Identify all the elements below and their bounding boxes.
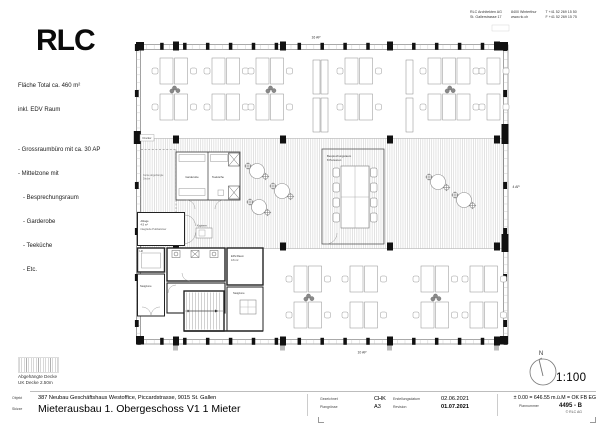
printer-label: Drucker: [142, 136, 151, 140]
titleblock-divider: [30, 391, 596, 392]
objekt-label: Objekt: [12, 396, 22, 400]
gezeichnet-value: CHK: [374, 396, 386, 402]
info-line: - Teeküche: [18, 242, 100, 250]
ap-count-right: 4 AP: [513, 185, 521, 189]
gezeichnet-label: Gezeichnet: [320, 397, 338, 401]
info-line: Fläche Total ca. 460 m²: [18, 82, 100, 90]
legend-text: Abgehängte Decke UK Decke 2.50m: [18, 374, 57, 386]
titleblock-separator: [497, 394, 498, 416]
area-summary: Fläche Total ca. 460 m² inkl. EDV Raum -…: [18, 66, 100, 290]
teekueche-label: Teeküche: [212, 175, 224, 179]
scale-label: 1:100: [556, 372, 586, 384]
ap-count-top: 16 AP: [311, 36, 321, 40]
lift-label: Lift: [140, 249, 144, 253]
company-fax: F +41 52 269 15 75: [546, 15, 577, 20]
info-line: inkl. EDV Raum: [18, 106, 100, 114]
objekt-value: 387 Neubau Geschäftshaus Westoffice, Pic…: [38, 395, 216, 401]
copier-label: Kopierer: [197, 224, 207, 228]
edv-room-area: 4.6 m²: [231, 258, 238, 262]
crop-mark: [590, 417, 596, 423]
plangroesse-value: A3: [374, 404, 381, 410]
legend-line1: Abgehängte Decke: [18, 374, 57, 380]
revision-label: Revision: [393, 405, 406, 409]
erstellungsdatum-value: 02.06.2021: [441, 396, 469, 402]
info-line: - Besprechungsraum: [18, 194, 100, 202]
company-info: RLC Architekten AG St. Gallerstrasse 17 …: [470, 10, 577, 20]
revision-value: 01.07.2021: [441, 404, 469, 410]
erstellungsdatum-label: Erstellungsdatum: [393, 397, 420, 401]
copyright-note: © RLC AG: [566, 410, 582, 414]
plan-sheet: RLC RLC Architekten AG St. Gallerstrasse…: [0, 0, 600, 424]
ceiling-edge-label2: Decke: [143, 177, 151, 180]
drawing-title: Mieterausbau 1. Obergeschoss V1 1 Mieter: [38, 403, 241, 415]
company-logo: RLC: [36, 24, 95, 58]
info-line: - Mittelzone mit: [18, 170, 100, 178]
suspended-ceiling-legend-swatch: [18, 357, 59, 373]
steigzone-left-label: Steigzone: [140, 284, 152, 288]
meeting-room-capacity: 8 Personen: [327, 158, 342, 162]
copier: [196, 228, 212, 238]
reference-box: [492, 25, 509, 31]
legend-line2: UK Decke 2.50m: [18, 380, 57, 386]
skizze-label: Skizze: [12, 407, 22, 411]
plannummer-value: 4495 - B: [559, 403, 582, 409]
titleblock-separator: [307, 394, 308, 416]
info-line: - Grossraumbüro mit ca. 30 AP: [18, 146, 100, 154]
floor-plan-drawing: Kante abgehängte Decke Drucker Garderobe…: [126, 22, 528, 360]
north-label: N: [539, 351, 543, 357]
storage-room-area: 4.5 m²: [141, 223, 148, 227]
crop-mark: [318, 417, 324, 423]
info-line: - Etc.: [18, 266, 100, 274]
edv-room-label: EDV-Raum: [231, 254, 244, 258]
steigzone-right-label: Steigzone: [233, 291, 245, 295]
company-street: St. Gallerstrasse 17: [470, 15, 502, 20]
company-web: www.rlc.ch: [511, 15, 537, 20]
plannummer-label: Plannummer: [519, 404, 539, 408]
ap-count-bottom: 10 AP: [357, 351, 367, 355]
plangroesse-label: Plangrösse: [320, 405, 338, 409]
garderobe-label: Garderobe: [185, 175, 199, 179]
storage-room-note: integrierte Putzkammer: [141, 228, 167, 231]
service-core: Lift Steigzone EDV-Raum 4.6 m² Steigzone: [138, 248, 264, 331]
info-line: - Garderobe: [18, 218, 100, 226]
elevation-reference: ± 0.00 = 646.55 m.ü.M = OK FB EG: [514, 395, 596, 401]
storage-room-label: Ablage: [141, 219, 150, 223]
